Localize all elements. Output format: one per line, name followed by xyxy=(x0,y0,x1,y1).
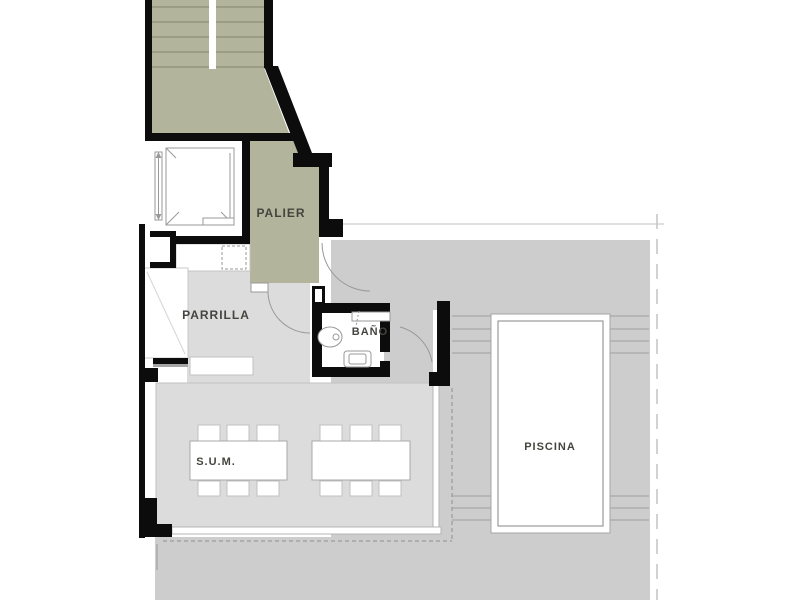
sum-corner-wall xyxy=(139,524,172,537)
floor-plan-canvas: PISCINA PALIER xyxy=(0,0,800,600)
elevator xyxy=(152,141,242,236)
toilet-flush-icon xyxy=(333,334,339,340)
dining-set-2 xyxy=(312,425,410,496)
stair-left-wall xyxy=(145,0,152,141)
elevator-top-wall xyxy=(145,133,296,141)
floor-plan-drawing: PISCINA PALIER xyxy=(0,0,800,600)
stair-divider xyxy=(209,0,216,69)
sink-icon xyxy=(344,351,371,367)
elevator-right-wall xyxy=(242,141,250,237)
grill-dashed-icon xyxy=(222,246,246,269)
door-leaf-palier xyxy=(251,283,268,292)
sum-glass-wall-bottom xyxy=(172,527,441,534)
stair-right-wall xyxy=(264,0,273,68)
dining-table xyxy=(312,441,410,480)
swimming-pool: PISCINA xyxy=(491,314,610,533)
sum-label: S.U.M. xyxy=(196,456,236,468)
sum-glass-wall-right xyxy=(433,384,439,530)
palier-label: PALIER xyxy=(256,206,305,220)
elevator-cab xyxy=(166,148,234,225)
counter-bottom xyxy=(190,357,253,375)
parrilla-label: PARRILLA xyxy=(182,308,250,322)
piscina-label: PISCINA xyxy=(524,441,576,453)
dining-set-1: S.U.M. xyxy=(190,425,287,496)
bano-label: BAÑO xyxy=(352,325,388,338)
elevator-bottom-wall xyxy=(176,236,250,244)
